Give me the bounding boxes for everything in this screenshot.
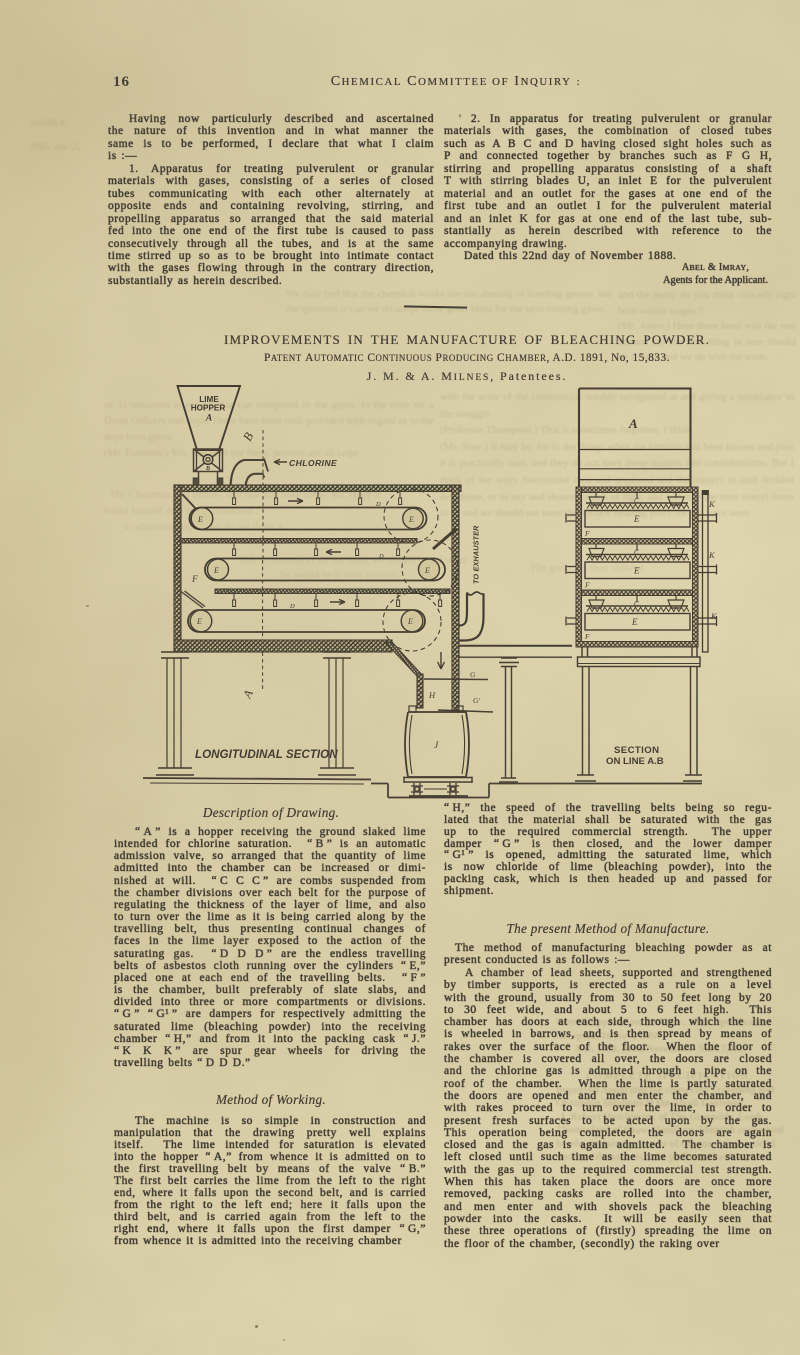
svg-text:LONGITUDINAL SECTION: LONGITUDINAL SECTION xyxy=(195,747,338,761)
svg-text:Gʹ: Gʹ xyxy=(473,696,480,705)
svg-text:E: E xyxy=(407,617,413,626)
svg-text:K: K xyxy=(708,499,716,509)
svg-text:E: E xyxy=(213,566,219,575)
svg-text:C: C xyxy=(634,600,639,608)
svg-text:F: F xyxy=(191,575,198,585)
svg-text:D: D xyxy=(375,501,381,508)
svg-text:F: F xyxy=(584,632,590,641)
svg-text:K: K xyxy=(708,550,716,560)
svg-text:E: E xyxy=(197,515,203,524)
svg-text:CHLORINE: CHLORINE xyxy=(289,458,337,468)
svg-text:E: E xyxy=(633,566,640,576)
svg-text:E: E xyxy=(424,566,430,575)
svg-text:A: A xyxy=(628,416,638,431)
svg-text:SECTION: SECTION xyxy=(614,745,659,756)
svg-text:E: E xyxy=(633,514,640,524)
svg-text:H: H xyxy=(428,690,436,700)
svg-text:D: D xyxy=(289,603,295,610)
svg-text:F: F xyxy=(584,529,590,538)
svg-text:B: B xyxy=(205,466,210,472)
svg-text:C: C xyxy=(634,549,639,557)
svg-text:E: E xyxy=(631,617,638,627)
svg-text:A: A xyxy=(240,687,256,701)
svg-text:HOPPER: HOPPER xyxy=(191,404,226,413)
svg-text:A: A xyxy=(205,414,212,424)
svg-text:F: F xyxy=(584,581,590,590)
svg-text:G: G xyxy=(470,670,476,679)
svg-text:J: J xyxy=(434,741,439,751)
svg-text:D: D xyxy=(378,553,384,560)
svg-text:ON LINE A.B: ON LINE A.B xyxy=(606,756,664,767)
svg-text:TO EXHAUSTER: TO EXHAUSTER xyxy=(472,525,481,584)
svg-text:E: E xyxy=(408,515,414,524)
svg-text:E: E xyxy=(196,617,202,626)
svg-text:C: C xyxy=(634,497,639,505)
svg-text:B: B xyxy=(240,430,256,444)
